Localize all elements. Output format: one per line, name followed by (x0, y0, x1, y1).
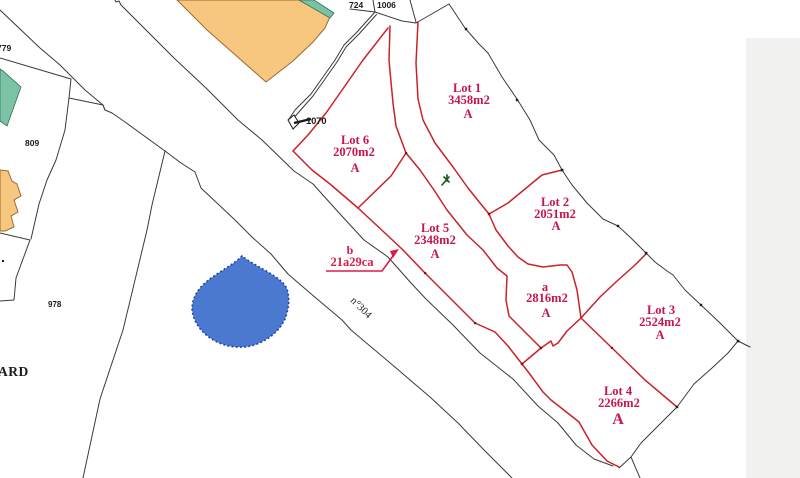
svg-text:A: A (430, 247, 439, 261)
svg-text:A: A (463, 107, 472, 121)
svg-text:809: 809 (25, 138, 39, 148)
svg-text:A: A (541, 306, 550, 320)
svg-text:3458m2: 3458m2 (448, 93, 490, 107)
svg-text:A: A (655, 328, 664, 342)
svg-text:21a29ca: 21a29ca (330, 255, 374, 269)
svg-text:2070m2: 2070m2 (333, 145, 375, 159)
svg-text:2816m2: 2816m2 (526, 291, 568, 305)
svg-text:978: 978 (48, 300, 62, 309)
svg-text:724: 724 (349, 0, 363, 10)
svg-text:2348m2: 2348m2 (414, 233, 456, 247)
svg-text:A: A (350, 161, 359, 175)
svg-text:1006: 1006 (377, 0, 396, 10)
svg-text:A: A (551, 219, 560, 233)
svg-text:1070: 1070 (306, 116, 326, 127)
svg-text:A: A (612, 411, 624, 428)
svg-text:2524m2: 2524m2 (639, 315, 681, 329)
svg-text:2266m2: 2266m2 (598, 396, 640, 410)
svg-text:ARD: ARD (0, 364, 29, 379)
svg-text:779: 779 (0, 43, 11, 53)
